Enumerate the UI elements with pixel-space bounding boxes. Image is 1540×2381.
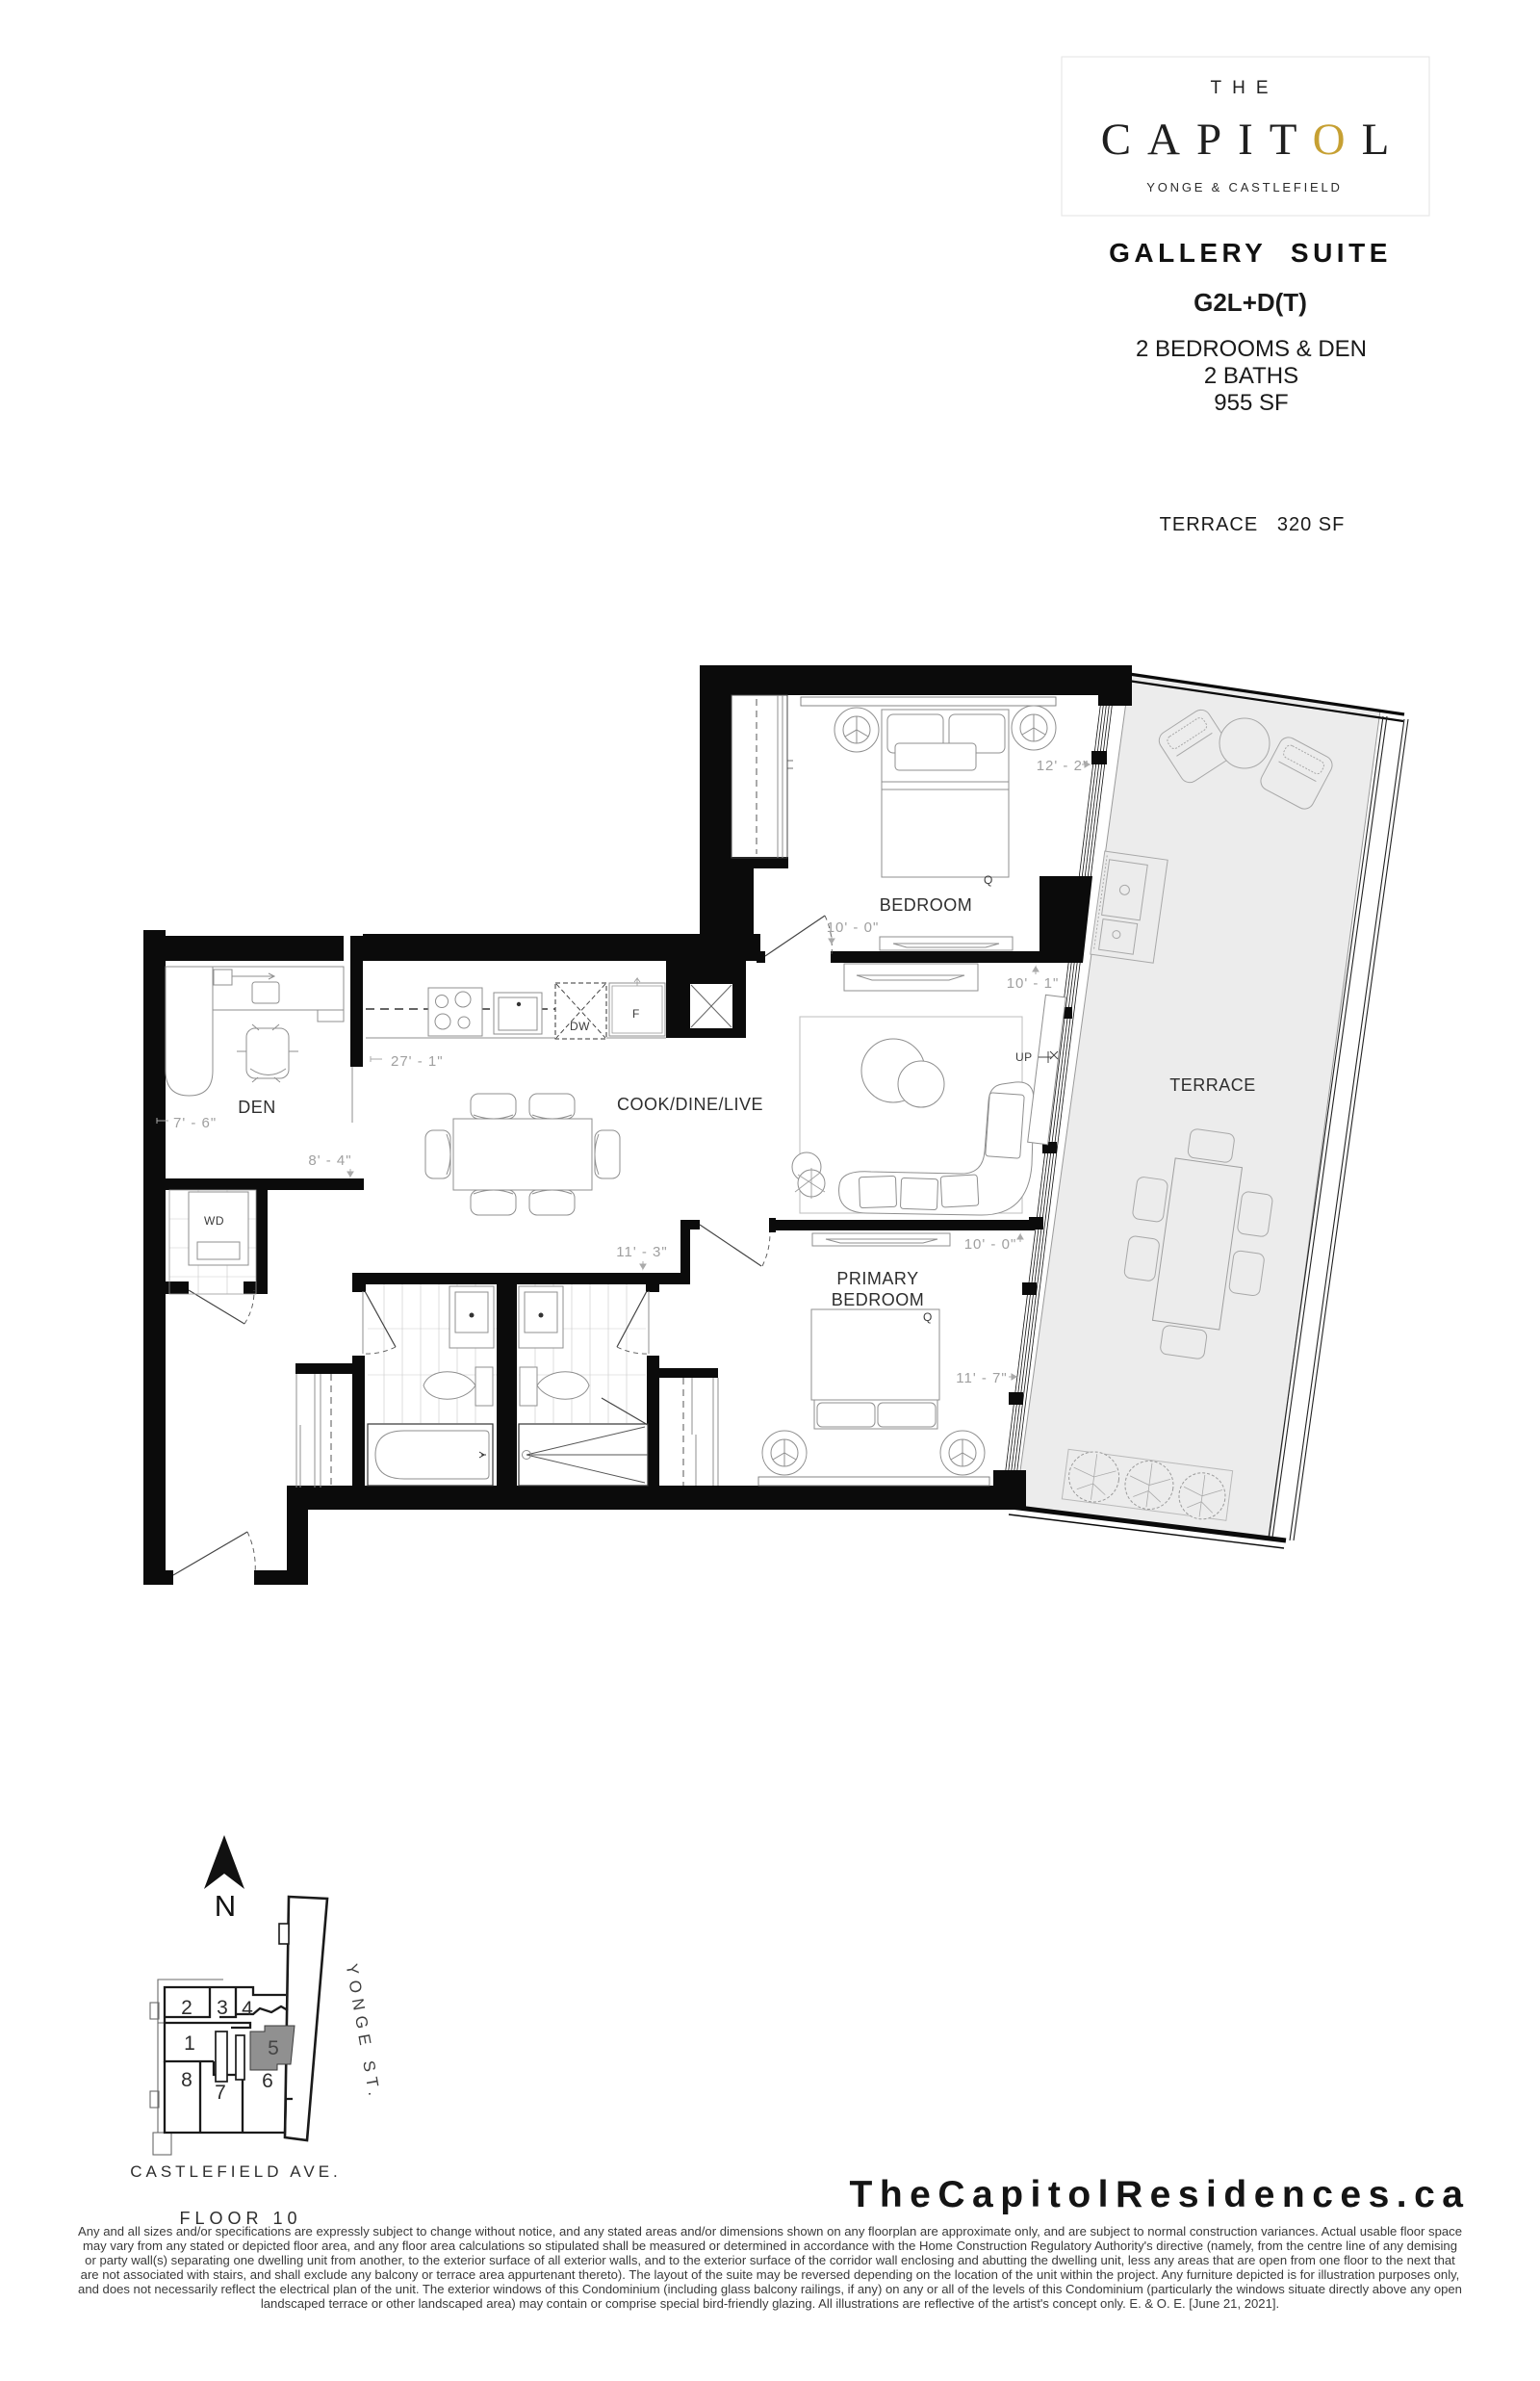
svg-text:10' - 1": 10' - 1" [1007, 975, 1060, 992]
svg-text:PRIMARY: PRIMARY [836, 1269, 918, 1288]
svg-text:Any and all sizes and/or speci: Any and all sizes and/or specifications … [78, 2224, 1462, 2239]
svg-text:TERRACE: TERRACE [1169, 1075, 1256, 1095]
svg-text:CAPITOL: CAPITOL [1101, 115, 1406, 165]
svg-text:BEDROOM: BEDROOM [832, 1290, 925, 1309]
svg-text:1: 1 [184, 2032, 195, 2055]
svg-text:UP: UP [1015, 1050, 1033, 1064]
svg-text:10' - 0": 10' - 0" [827, 919, 880, 936]
svg-text:955 SF: 955 SF [1214, 390, 1288, 416]
svg-text:8: 8 [181, 2069, 192, 2091]
svg-text:2 BEDROOMS & DEN: 2 BEDROOMS & DEN [1136, 336, 1367, 362]
svg-text:5: 5 [268, 2037, 279, 2059]
svg-text:7' - 6": 7' - 6" [173, 1115, 217, 1131]
svg-text:YONGE & CASTLEFIELD: YONGE & CASTLEFIELD [1146, 180, 1342, 194]
svg-text:4: 4 [242, 1998, 253, 2020]
svg-text:THE: THE [1211, 78, 1279, 98]
svg-text:COOK/DINE/LIVE: COOK/DINE/LIVE [617, 1095, 763, 1114]
svg-text:TheCapitolResidences.ca: TheCapitolResidences.ca [850, 2174, 1471, 2215]
svg-text:Q: Q [923, 1310, 933, 1324]
svg-text:GALLERY SUITE: GALLERY SUITE [1109, 238, 1392, 268]
svg-text:F: F [632, 1007, 640, 1021]
svg-text:and does not necessarily refle: and does not necessarily reflect the ele… [78, 2282, 1462, 2296]
svg-text:WD: WD [204, 1214, 224, 1228]
svg-text:3: 3 [217, 1997, 228, 2019]
svg-text:or party wall(s) separating on: or party wall(s) separating one dwelling… [85, 2253, 1455, 2267]
svg-text:6: 6 [262, 2070, 273, 2092]
svg-text:TERRACE 320 SF: TERRACE 320 SF [1160, 514, 1346, 535]
svg-text:11' - 7": 11' - 7" [956, 1370, 1007, 1386]
svg-text:8' - 4": 8' - 4" [308, 1152, 351, 1169]
svg-text:12' - 2": 12' - 2" [1037, 758, 1090, 774]
svg-text:may vary from any stated or de: may vary from any stated or depicted flo… [83, 2239, 1457, 2253]
svg-text:landscaped terrace or other la: landscaped terrace or other landscaped a… [261, 2296, 1279, 2311]
svg-text:CASTLEFIELD AVE.: CASTLEFIELD AVE. [130, 2162, 342, 2181]
svg-text:G2L+D(T): G2L+D(T) [1193, 288, 1307, 317]
svg-text:are not associated with stairs: are not associated with stairs, and shal… [81, 2267, 1460, 2282]
svg-text:N: N [215, 1889, 236, 1923]
svg-text:DEN: DEN [238, 1098, 276, 1117]
svg-text:7: 7 [215, 2082, 226, 2104]
svg-text:2 BATHS: 2 BATHS [1204, 363, 1298, 389]
svg-text:2: 2 [181, 1997, 192, 2019]
svg-text:27' - 1": 27' - 1" [391, 1053, 444, 1070]
svg-text:DW: DW [570, 1020, 590, 1033]
svg-text:10' - 0": 10' - 0" [964, 1236, 1017, 1253]
svg-text:Q: Q [984, 873, 993, 887]
svg-text:11' - 3": 11' - 3" [616, 1244, 667, 1260]
svg-text:BEDROOM: BEDROOM [880, 895, 973, 915]
svg-text:YONGE ST.: YONGE ST. [342, 1962, 384, 2103]
